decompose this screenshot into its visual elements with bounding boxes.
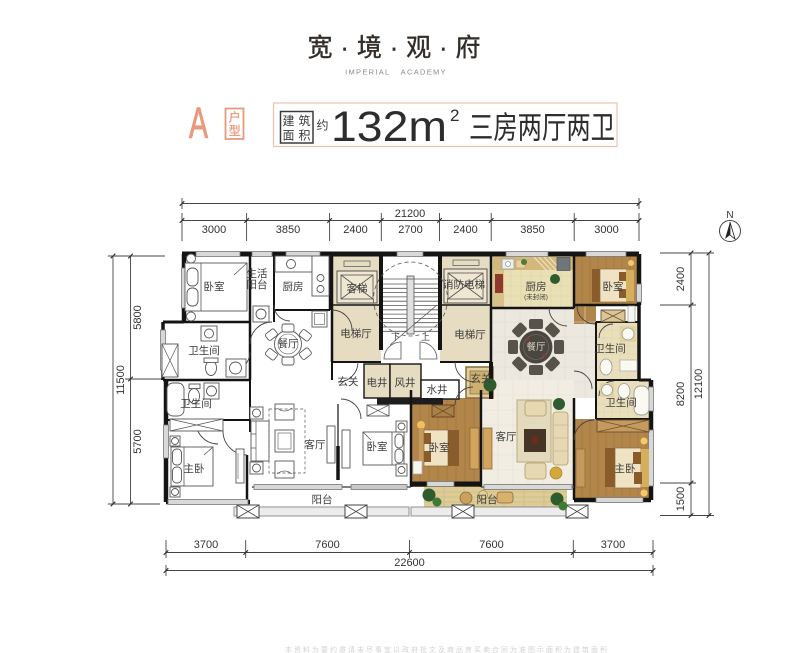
svg-text:主卧: 主卧	[615, 462, 636, 475]
svg-text:水井: 水井	[427, 383, 448, 396]
svg-text:3850: 3850	[276, 224, 300, 236]
svg-text:约: 约	[316, 118, 328, 133]
svg-text:下: 下	[391, 332, 400, 342]
svg-text:1500: 1500	[675, 487, 687, 511]
svg-text:卧室: 卧室	[367, 440, 388, 453]
svg-text:阳台: 阳台	[477, 493, 498, 506]
svg-text:消防电梯: 消防电梯	[443, 278, 485, 291]
svg-text:电梯厅: 电梯厅	[454, 328, 486, 341]
svg-text:2400: 2400	[675, 267, 687, 291]
svg-text:三房两厅两卫: 三房两厅两卫	[469, 111, 615, 146]
svg-text:N: N	[726, 210, 733, 221]
svg-text:2400: 2400	[453, 224, 477, 236]
svg-text:8200: 8200	[675, 382, 687, 406]
svg-text:7600: 7600	[315, 539, 339, 551]
svg-text:玄关: 玄关	[338, 375, 359, 388]
svg-text:本资料为要约邀请未尽事宜以政府批文及商品房买卖合同为准图示面: 本资料为要约邀请未尽事宜以政府批文及商品房买卖合同为准图示面积为建筑面积	[285, 645, 609, 653]
svg-text:2700: 2700	[398, 224, 422, 236]
svg-text:客梯: 客梯	[347, 282, 368, 295]
svg-text:卫生间: 卫生间	[605, 396, 637, 409]
svg-text:卧室: 卧室	[204, 280, 225, 293]
svg-text:卫生间: 卫生间	[180, 397, 212, 410]
svg-text:餐厅: 餐厅	[526, 341, 546, 353]
svg-text:22600: 22600	[394, 557, 425, 569]
svg-text:玄关: 玄关	[471, 372, 492, 385]
svg-text:12100: 12100	[693, 369, 705, 400]
svg-text:宽·境·观·府: 宽·境·观·府	[308, 34, 489, 62]
svg-text:阳台: 阳台	[247, 278, 268, 291]
svg-text:风井: 风井	[395, 376, 416, 389]
svg-text:3850: 3850	[520, 224, 544, 236]
svg-text:IMPERIAL ACADEMY: IMPERIAL ACADEMY	[345, 68, 447, 77]
svg-text:厨房: 厨房	[526, 280, 547, 293]
svg-text:2: 2	[450, 106, 459, 125]
svg-text:客厅: 客厅	[305, 438, 326, 451]
svg-text:11500: 11500	[115, 365, 127, 395]
svg-text:卧室: 卧室	[603, 280, 624, 293]
svg-text:2400: 2400	[343, 224, 367, 236]
svg-text:面: 面	[282, 129, 294, 143]
svg-text:3000: 3000	[202, 224, 226, 236]
svg-text:厨房: 厨房	[283, 280, 304, 293]
svg-text:电梯厅: 电梯厅	[340, 327, 372, 340]
svg-text:卧室: 卧室	[429, 441, 450, 454]
svg-text:132m: 132m	[331, 103, 447, 151]
svg-text:3700: 3700	[194, 539, 218, 551]
svg-text:(未封闭): (未封闭)	[524, 292, 548, 301]
svg-text:主卧: 主卧	[184, 462, 205, 475]
svg-text:3700: 3700	[601, 539, 625, 551]
svg-text:户: 户	[229, 110, 241, 125]
svg-text:电井: 电井	[367, 376, 388, 389]
svg-text:3000: 3000	[594, 224, 618, 236]
svg-text:5700: 5700	[132, 429, 144, 453]
svg-text:客厅: 客厅	[496, 430, 517, 443]
svg-text:7600: 7600	[479, 539, 503, 551]
svg-text:卫生间: 卫生间	[188, 344, 220, 357]
svg-text:阳台: 阳台	[312, 493, 333, 506]
svg-text:建: 建	[282, 114, 294, 128]
svg-text:21200: 21200	[395, 208, 426, 220]
svg-text:A: A	[189, 99, 208, 148]
svg-text:积: 积	[298, 129, 310, 143]
svg-text:餐厅: 餐厅	[278, 337, 299, 350]
svg-text:筑: 筑	[298, 113, 310, 128]
svg-text:5800: 5800	[132, 305, 144, 329]
svg-text:上: 上	[421, 332, 430, 342]
svg-text:型: 型	[229, 124, 241, 138]
svg-text:卫生间: 卫生间	[594, 342, 626, 355]
